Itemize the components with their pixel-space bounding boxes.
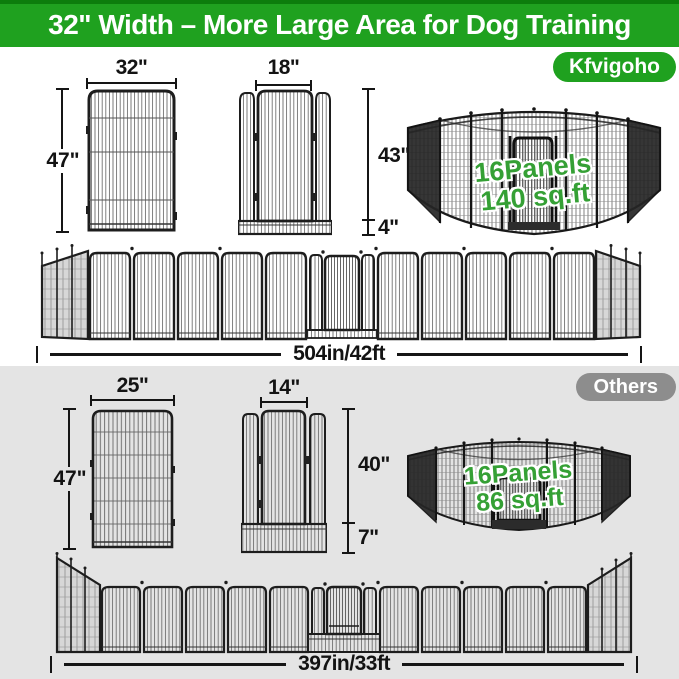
brand-pen-figure: 16Panels 140 sq.ft [398, 86, 670, 246]
door-height-dim [362, 88, 375, 236]
others-badge: Others [576, 373, 676, 401]
others-total-length-dim: 397in/33ft [50, 653, 638, 675]
banner-title: 32" Width – More Large Area for Dog Trai… [0, 4, 679, 46]
wire-panel-graphic [90, 408, 175, 550]
others-panels-row-graphic [50, 552, 638, 656]
others-badge-label: Others [594, 376, 658, 399]
door-base-label: 4" [378, 216, 399, 240]
door-height-label: 40" [358, 453, 390, 477]
door-base-label: 7" [358, 526, 379, 550]
brand-badge-label: Kfvigoho [569, 55, 660, 79]
product-infographic: 32" Width – More Large Area for Dog Trai… [0, 0, 679, 679]
door-height-dim [342, 408, 355, 554]
brand-total-length-dim: 504in/42ft [36, 343, 642, 365]
brand-panels-row-graphic [36, 244, 642, 344]
brand-door-diagram: 18" 43" 4" [210, 58, 410, 240]
panel-width-dim [90, 395, 175, 406]
wire-panel-graphic [86, 88, 177, 233]
others-pen-figure: 16Panels 86 sq.ft [400, 420, 638, 552]
brand-panel-diagram: 32" 47" [40, 58, 215, 240]
panel-width-label: 32" [86, 56, 177, 80]
door-width-label: 18" [255, 56, 312, 80]
brand-total-length-label: 504in/42ft [293, 342, 385, 366]
others-panel-diagram: 25" 47" [45, 374, 220, 570]
others-total-length-label: 397in/33ft [298, 652, 390, 676]
door-width-dim [260, 397, 308, 408]
panel-height-label: 47" [50, 467, 90, 491]
panel-height-label: 47" [43, 149, 83, 173]
title-banner: 32" Width – More Large Area for Dog Trai… [0, 0, 679, 47]
door-panel-graphic [241, 408, 327, 554]
others-door-diagram: 14" 40" 7" [225, 374, 410, 570]
brand-badge: Kfvigoho [553, 52, 676, 82]
door-panel-graphic [238, 88, 332, 236]
